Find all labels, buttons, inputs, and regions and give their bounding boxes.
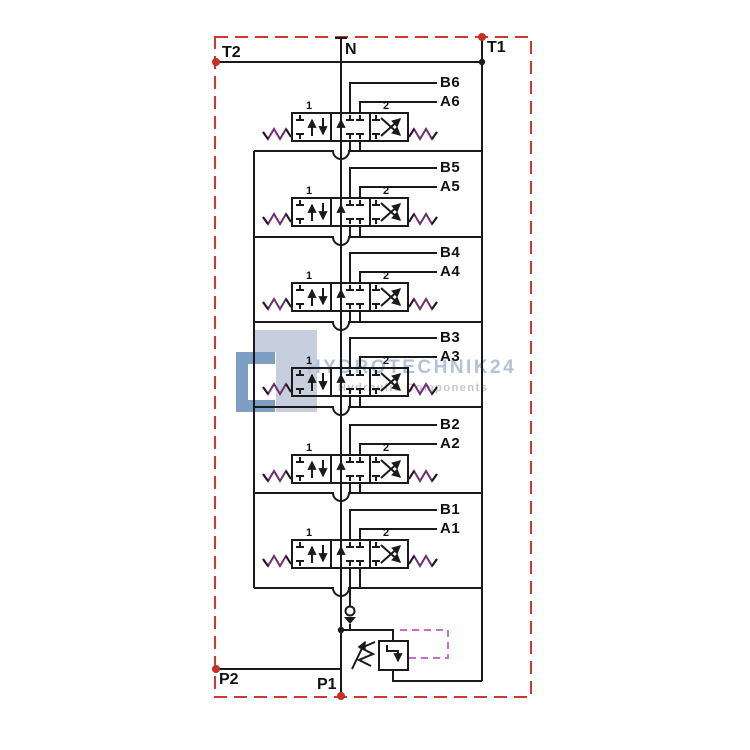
relief-valve-icon — [352, 630, 448, 670]
port-label-b3: B3 — [440, 329, 460, 346]
port-dot-t2 — [212, 58, 220, 66]
port-label-a4: A4 — [440, 263, 460, 280]
port-label-a1: A1 — [440, 520, 460, 537]
spool-position-1-label: 1 — [306, 185, 312, 197]
spool-position-2-label: 2 — [383, 100, 389, 112]
hydraulic-schematic-page: HYDROTECHNIK24 Hydraulic Components — [0, 0, 750, 750]
port-label-a2: A2 — [440, 435, 460, 452]
spool-position-1-label: 1 — [306, 527, 312, 539]
check-valve-icon — [344, 607, 356, 625]
spool-position-1-label: 1 — [306, 100, 312, 112]
port-label-a5: A5 — [440, 178, 460, 195]
spool-position-2-label: 2 — [383, 270, 389, 282]
spool-position-1-label: 1 — [306, 355, 312, 367]
port-label-b2: B2 — [440, 416, 460, 433]
port-dot-p1 — [337, 692, 345, 700]
spool-position-1-label: 1 — [306, 442, 312, 454]
port-label-p1: P1 — [317, 676, 337, 694]
spool-position-1-label: 1 — [306, 270, 312, 282]
port-label-n: N — [345, 41, 357, 59]
port-label-t1: T1 — [487, 39, 506, 57]
port-label-b4: B4 — [440, 244, 460, 261]
port-label-b6: B6 — [440, 74, 460, 91]
port-label-p2: P2 — [219, 671, 239, 689]
relief-adjust-arrow-icon — [352, 642, 365, 669]
relief-spring-icon — [359, 642, 375, 666]
spool-position-2-label: 2 — [383, 442, 389, 454]
spool-position-2-label: 2 — [383, 527, 389, 539]
port-label-a6: A6 — [440, 93, 460, 110]
port-label-a3: A3 — [440, 348, 460, 365]
port-label-b5: B5 — [440, 159, 460, 176]
spool-position-2-label: 2 — [383, 185, 389, 197]
spool-position-2-label: 2 — [383, 355, 389, 367]
port-dot-t1 — [478, 33, 486, 41]
port-label-b1: B1 — [440, 501, 460, 518]
schematic-canvas: 121212121212 — [0, 0, 750, 750]
port-label-t2: T2 — [222, 44, 241, 62]
